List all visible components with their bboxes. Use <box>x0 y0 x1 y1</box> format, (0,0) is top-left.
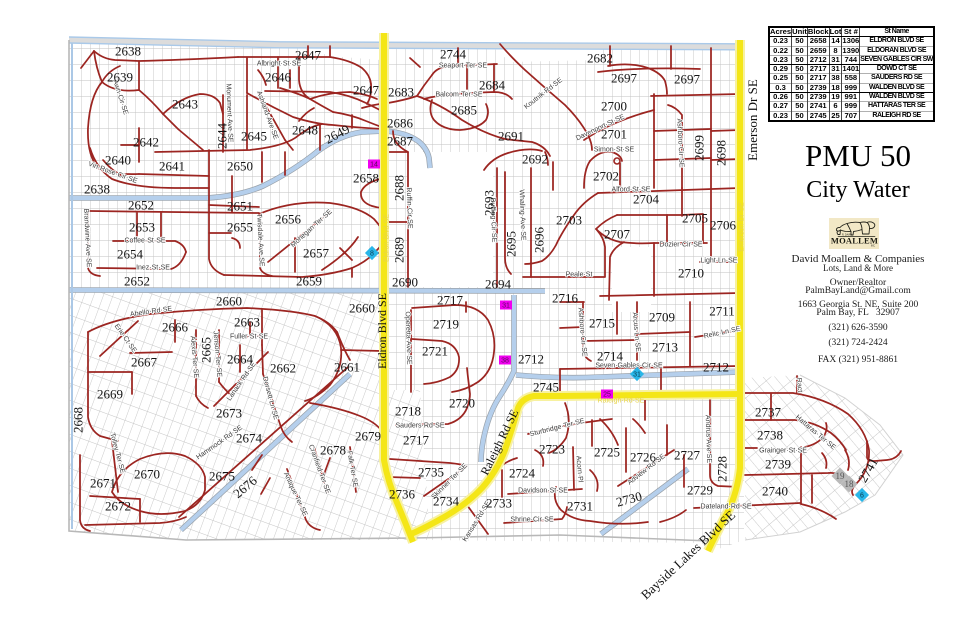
svg-text:2682: 2682 <box>587 51 613 66</box>
svg-text:2695: 2695 <box>504 231 519 257</box>
svg-text:2700: 2700 <box>601 99 627 114</box>
svg-text:2667: 2667 <box>131 355 158 370</box>
svg-text:2659: 2659 <box>296 274 322 289</box>
svg-text:2738: 2738 <box>757 428 783 443</box>
svg-text:2668: 2668 <box>71 407 86 433</box>
svg-text:2735: 2735 <box>418 465 444 480</box>
svg-text:Eldron·Blvd·SE: Eldron·Blvd·SE <box>384 214 391 262</box>
svg-text:Simon·St·SE: Simon·St·SE <box>594 147 635 154</box>
svg-text:2719: 2719 <box>433 317 459 332</box>
svg-text:2707: 2707 <box>604 227 631 242</box>
svg-text:2670: 2670 <box>134 467 160 482</box>
svg-text:2644: 2644 <box>215 123 230 150</box>
svg-text:2727: 2727 <box>674 448 701 463</box>
svg-text:2690: 2690 <box>392 275 418 290</box>
svg-text:2679: 2679 <box>355 429 381 444</box>
svg-text:2697: 2697 <box>674 72 701 87</box>
svg-text:Emerson Dr SE: Emerson Dr SE <box>745 79 760 161</box>
svg-text:2712: 2712 <box>703 360 729 375</box>
svg-text:Grainger·St·SE: Grainger·St·SE <box>759 448 807 455</box>
svg-text:2660: 2660 <box>216 294 242 309</box>
svg-text:2731: 2731 <box>567 499 593 514</box>
svg-text:2660: 2660 <box>349 301 375 316</box>
svg-text:2725: 2725 <box>594 445 620 460</box>
svg-text:2651: 2651 <box>227 199 253 214</box>
svg-text:6: 6 <box>860 493 864 500</box>
svg-text:Raleigh·Rd·SE: Raleigh·Rd·SE <box>598 398 645 405</box>
svg-text:Eldron Blvd SE: Eldron Blvd SE <box>375 293 389 369</box>
svg-text:Sauders·Rd·SE: Sauders·Rd·SE <box>395 423 444 430</box>
svg-text:Seaport·Ter·SE: Seaport·Ter·SE <box>439 63 488 70</box>
svg-text:2729: 2729 <box>687 483 713 498</box>
svg-text:2715: 2715 <box>589 316 615 331</box>
svg-text:2692: 2692 <box>522 152 548 167</box>
svg-text:Dozier·Cir·SE: Dozier·Cir·SE <box>659 242 703 249</box>
svg-text:2704: 2704 <box>633 192 660 207</box>
svg-text:2697: 2697 <box>611 71 638 86</box>
svg-text:2706: 2706 <box>710 218 737 233</box>
svg-text:2736: 2736 <box>389 487 416 502</box>
svg-text:2714: 2714 <box>597 349 624 364</box>
svg-text:2643: 2643 <box>172 97 198 112</box>
svg-text:2652: 2652 <box>124 274 150 289</box>
svg-text:2734: 2734 <box>433 494 460 509</box>
svg-text:2745: 2745 <box>533 380 559 395</box>
svg-text:Inez·St·SE: Inez·St·SE <box>136 265 170 272</box>
svg-text:2665: 2665 <box>199 337 214 363</box>
svg-text:2671: 2671 <box>90 476 116 491</box>
svg-text:2685: 2685 <box>451 103 477 118</box>
svg-text:2663: 2663 <box>234 315 260 330</box>
svg-text:2724: 2724 <box>509 466 536 481</box>
svg-text:2656: 2656 <box>275 212 302 227</box>
svg-text:2710: 2710 <box>678 266 704 281</box>
svg-text:2717: 2717 <box>437 293 464 308</box>
svg-text:2646: 2646 <box>265 70 292 85</box>
svg-text:2744: 2744 <box>440 47 467 62</box>
svg-text:2654: 2654 <box>117 247 144 262</box>
svg-text:2694: 2694 <box>485 277 512 292</box>
svg-text:18: 18 <box>845 479 855 489</box>
svg-text:2640: 2640 <box>105 153 131 168</box>
svg-text:Balcom·Ter·SE: Balcom·Ter·SE <box>435 92 482 99</box>
svg-text:2737: 2737 <box>755 405 782 420</box>
svg-text:2666: 2666 <box>162 320 189 335</box>
svg-text:31: 31 <box>502 303 510 310</box>
svg-text:Davidson·St·SE: Davidson·St·SE <box>518 488 568 495</box>
svg-text:2674: 2674 <box>236 431 263 446</box>
svg-text:2720: 2720 <box>449 396 475 411</box>
svg-text:Fuller·St·SE: Fuller·St·SE <box>230 334 268 341</box>
svg-text:2655: 2655 <box>227 220 253 235</box>
svg-text:8: 8 <box>370 251 374 258</box>
svg-text:2675: 2675 <box>209 469 235 484</box>
svg-text:2647: 2647 <box>295 48 322 63</box>
svg-text:2642: 2642 <box>133 135 159 150</box>
svg-text:2672: 2672 <box>105 499 131 514</box>
svg-text:2648: 2648 <box>292 123 318 138</box>
svg-text:2683: 2683 <box>388 85 414 100</box>
svg-text:2689: 2689 <box>392 237 407 263</box>
svg-text:2701: 2701 <box>601 127 627 142</box>
svg-text:38: 38 <box>501 358 509 365</box>
svg-text:Ract: Ract <box>795 378 803 393</box>
svg-text:2705: 2705 <box>682 211 708 226</box>
svg-text:Shrine·Cir·SE: Shrine·Cir·SE <box>510 517 554 524</box>
svg-text:14: 14 <box>370 162 378 169</box>
svg-text:2717: 2717 <box>403 433 430 448</box>
svg-text:Coffee·St·SE: Coffee·St·SE <box>124 238 165 245</box>
svg-text:2662: 2662 <box>270 361 296 376</box>
svg-text:2638: 2638 <box>115 44 141 59</box>
svg-text:2652: 2652 <box>128 198 154 213</box>
svg-text:2641: 2641 <box>159 159 185 174</box>
svg-text:2723: 2723 <box>539 442 565 457</box>
svg-text:R. DAVID: R. DAVID <box>842 234 852 237</box>
svg-text:2688: 2688 <box>392 175 407 201</box>
svg-text:2653: 2653 <box>129 220 155 235</box>
svg-text:2721: 2721 <box>422 344 448 359</box>
svg-text:2650: 2650 <box>227 159 253 174</box>
svg-text:2686: 2686 <box>387 116 414 131</box>
svg-text:2691: 2691 <box>498 129 524 144</box>
svg-text:2696: 2696 <box>532 227 547 254</box>
svg-text:2658: 2658 <box>353 171 379 186</box>
svg-text:2684: 2684 <box>479 78 506 93</box>
svg-text:2712: 2712 <box>518 352 544 367</box>
svg-text:Peale·St: Peale·St <box>566 272 593 279</box>
svg-text:2647: 2647 <box>353 83 380 98</box>
svg-text:2740: 2740 <box>762 484 788 499</box>
svg-text:31: 31 <box>633 372 641 379</box>
svg-text:Seven·Gables·Cir·SE: Seven·Gables·Cir·SE <box>595 363 663 370</box>
svg-text:Light·Ln·SE: Light·Ln·SE <box>701 258 738 265</box>
svg-text:2693: 2693 <box>482 190 497 216</box>
svg-text:MOALLEM: MOALLEM <box>831 236 878 246</box>
svg-text:2739: 2739 <box>765 457 791 472</box>
svg-text:2702: 2702 <box>593 169 619 184</box>
svg-text:2726: 2726 <box>630 450 657 465</box>
svg-text:2664: 2664 <box>227 352 254 367</box>
svg-text:2645: 2645 <box>241 129 267 144</box>
svg-text:2699: 2699 <box>692 135 707 161</box>
svg-text:2709: 2709 <box>649 310 675 325</box>
svg-text:2639: 2639 <box>107 70 133 85</box>
svg-text:2638: 2638 <box>84 182 110 197</box>
svg-text:Emerson·Dr·SE: Emerson·Dr·SE <box>739 202 746 252</box>
svg-text:2661: 2661 <box>334 360 360 375</box>
svg-text:2703: 2703 <box>556 213 582 228</box>
svg-text:2713: 2713 <box>652 340 678 355</box>
svg-text:2657: 2657 <box>303 246 330 261</box>
svg-text:2698: 2698 <box>714 140 729 166</box>
svg-text:INC: INC <box>871 246 875 248</box>
svg-text:2718: 2718 <box>395 404 421 419</box>
svg-text:2673: 2673 <box>216 406 242 421</box>
svg-text:2733: 2733 <box>486 496 512 511</box>
svg-text:2716: 2716 <box>552 291 579 306</box>
svg-text:2669: 2669 <box>97 387 123 402</box>
svg-text:2728: 2728 <box>715 456 730 482</box>
svg-text:2678: 2678 <box>320 443 346 458</box>
svg-text:2711: 2711 <box>709 304 735 319</box>
svg-text:2687: 2687 <box>387 134 414 149</box>
svg-text:25: 25 <box>603 392 611 399</box>
